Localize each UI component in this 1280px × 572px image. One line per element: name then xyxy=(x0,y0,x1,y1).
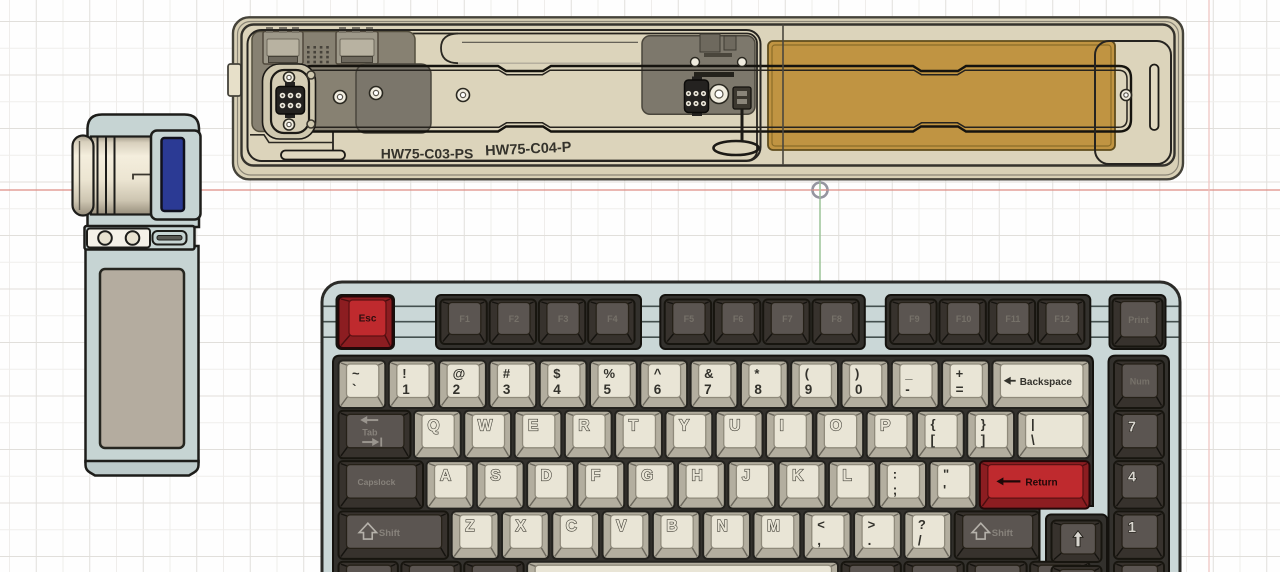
svg-text:,: , xyxy=(817,533,821,548)
svg-text:F6: F6 xyxy=(733,314,744,324)
svg-text:1: 1 xyxy=(1128,520,1136,536)
svg-text:8: 8 xyxy=(754,382,762,397)
svg-text::: : xyxy=(893,467,897,482)
svg-text:HW75-C03-PS: HW75-C03-PS xyxy=(381,146,474,162)
svg-text:;: ; xyxy=(893,483,898,498)
svg-text:I: I xyxy=(780,417,784,434)
svg-text:F1: F1 xyxy=(459,314,470,324)
svg-text:O: O xyxy=(830,417,842,434)
svg-text:Y: Y xyxy=(679,417,690,434)
svg-text:K: K xyxy=(792,468,804,485)
svg-text:^: ^ xyxy=(654,366,662,381)
svg-text:-: - xyxy=(905,382,910,397)
svg-text:Tab: Tab xyxy=(362,428,378,438)
svg-text:<: < xyxy=(817,517,825,532)
svg-text:|: | xyxy=(1031,416,1035,431)
svg-text:(: ( xyxy=(805,366,810,381)
svg-text:[: [ xyxy=(930,432,935,447)
svg-text:D: D xyxy=(541,468,552,485)
svg-text:}: } xyxy=(981,416,986,431)
svg-text:7: 7 xyxy=(704,382,712,397)
svg-text:N: N xyxy=(717,518,728,535)
svg-text:F4: F4 xyxy=(607,314,618,324)
svg-text:A: A xyxy=(440,468,451,485)
svg-text:=: = xyxy=(956,382,964,397)
svg-text:B: B xyxy=(666,518,677,535)
svg-text:C: C xyxy=(566,518,577,535)
svg-text:$: $ xyxy=(553,366,561,381)
svg-text:\: \ xyxy=(1031,432,1035,447)
svg-text:9: 9 xyxy=(805,382,813,397)
svg-text:H: H xyxy=(692,468,703,485)
svg-text:2: 2 xyxy=(453,382,461,397)
svg-text:0: 0 xyxy=(855,382,863,397)
svg-text:#: # xyxy=(503,366,511,381)
svg-text:U: U xyxy=(729,417,740,434)
svg-text:1: 1 xyxy=(402,382,410,397)
svg-text:F8: F8 xyxy=(831,314,842,324)
svg-text:F5: F5 xyxy=(684,314,695,324)
svg-text:!: ! xyxy=(402,366,406,381)
svg-text:W: W xyxy=(478,417,493,434)
svg-text:7: 7 xyxy=(1128,419,1136,435)
svg-text:Backspace: Backspace xyxy=(1020,377,1073,388)
svg-text:Num: Num xyxy=(1130,376,1150,386)
svg-text:+: + xyxy=(956,366,964,381)
svg-text:): ) xyxy=(855,366,859,381)
svg-text:S: S xyxy=(490,468,500,485)
svg-text:{: { xyxy=(930,416,935,431)
svg-text:F10: F10 xyxy=(956,314,972,324)
svg-text:Esc: Esc xyxy=(359,314,377,325)
svg-text:M: M xyxy=(767,518,780,535)
svg-text:`: ` xyxy=(352,382,357,397)
svg-text:E: E xyxy=(528,417,538,434)
svg-text:L: L xyxy=(842,468,851,485)
svg-text:.: . xyxy=(868,533,872,548)
svg-text:@: @ xyxy=(453,366,466,381)
svg-text:F3: F3 xyxy=(558,314,569,324)
svg-text:&: & xyxy=(704,366,713,381)
svg-text:F12: F12 xyxy=(1054,314,1070,324)
svg-text:F: F xyxy=(591,468,600,485)
svg-text:Q: Q xyxy=(427,417,439,434)
svg-text:Print: Print xyxy=(1128,315,1149,325)
svg-text:X: X xyxy=(515,518,526,535)
svg-text:T: T xyxy=(629,417,639,434)
svg-text:%: % xyxy=(604,366,616,381)
svg-text:R: R xyxy=(578,417,589,434)
svg-text:4: 4 xyxy=(553,382,561,397)
svg-text:4: 4 xyxy=(1128,470,1136,486)
svg-text:_: _ xyxy=(904,366,913,381)
svg-text:P: P xyxy=(880,417,890,434)
svg-text:?: ? xyxy=(918,517,926,532)
svg-text:/: / xyxy=(918,533,922,548)
svg-text:>: > xyxy=(868,517,876,532)
svg-text:F7: F7 xyxy=(782,314,793,324)
svg-text:Capslock: Capslock xyxy=(358,477,396,487)
svg-text:F2: F2 xyxy=(509,314,520,324)
svg-text:]: ] xyxy=(981,432,986,447)
svg-text:F9: F9 xyxy=(909,314,920,324)
svg-text:': ' xyxy=(943,483,946,498)
svg-text:Shift: Shift xyxy=(379,528,401,539)
svg-text:G: G xyxy=(641,468,653,485)
svg-text:Z: Z xyxy=(465,518,475,535)
svg-text:J: J xyxy=(742,468,751,485)
svg-text:V: V xyxy=(616,518,627,535)
svg-text:5: 5 xyxy=(604,382,612,397)
svg-text:": " xyxy=(943,467,949,482)
svg-text:~: ~ xyxy=(352,366,360,381)
svg-text:Return: Return xyxy=(1025,477,1057,488)
svg-text:Shift: Shift xyxy=(992,528,1014,539)
svg-text:3: 3 xyxy=(503,382,511,397)
svg-text:6: 6 xyxy=(654,382,662,397)
svg-text:F11: F11 xyxy=(1005,314,1020,324)
